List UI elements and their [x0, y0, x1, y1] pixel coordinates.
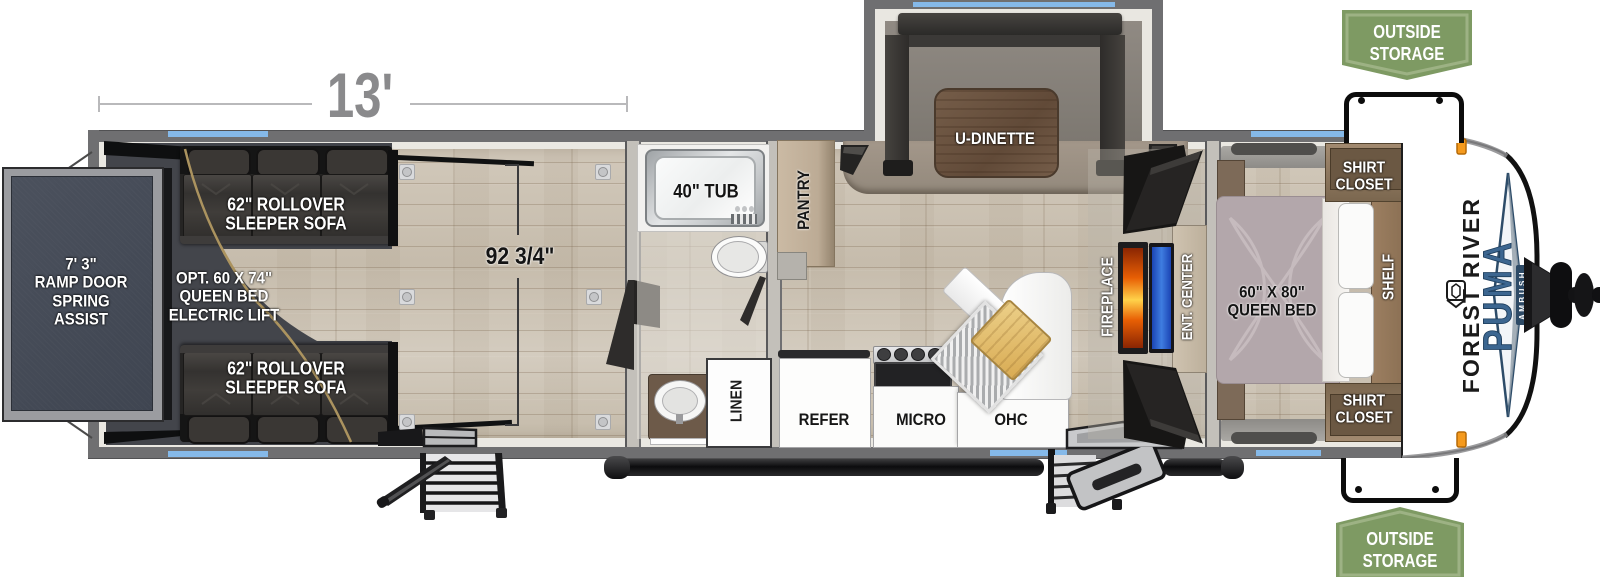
svg-text:OUTSIDE: OUTSIDE	[1366, 529, 1433, 550]
svg-text:OUTSIDE: OUTSIDE	[1373, 22, 1440, 43]
svg-text:STORAGE: STORAGE	[1363, 551, 1438, 572]
svg-text:STORAGE: STORAGE	[1370, 44, 1445, 65]
